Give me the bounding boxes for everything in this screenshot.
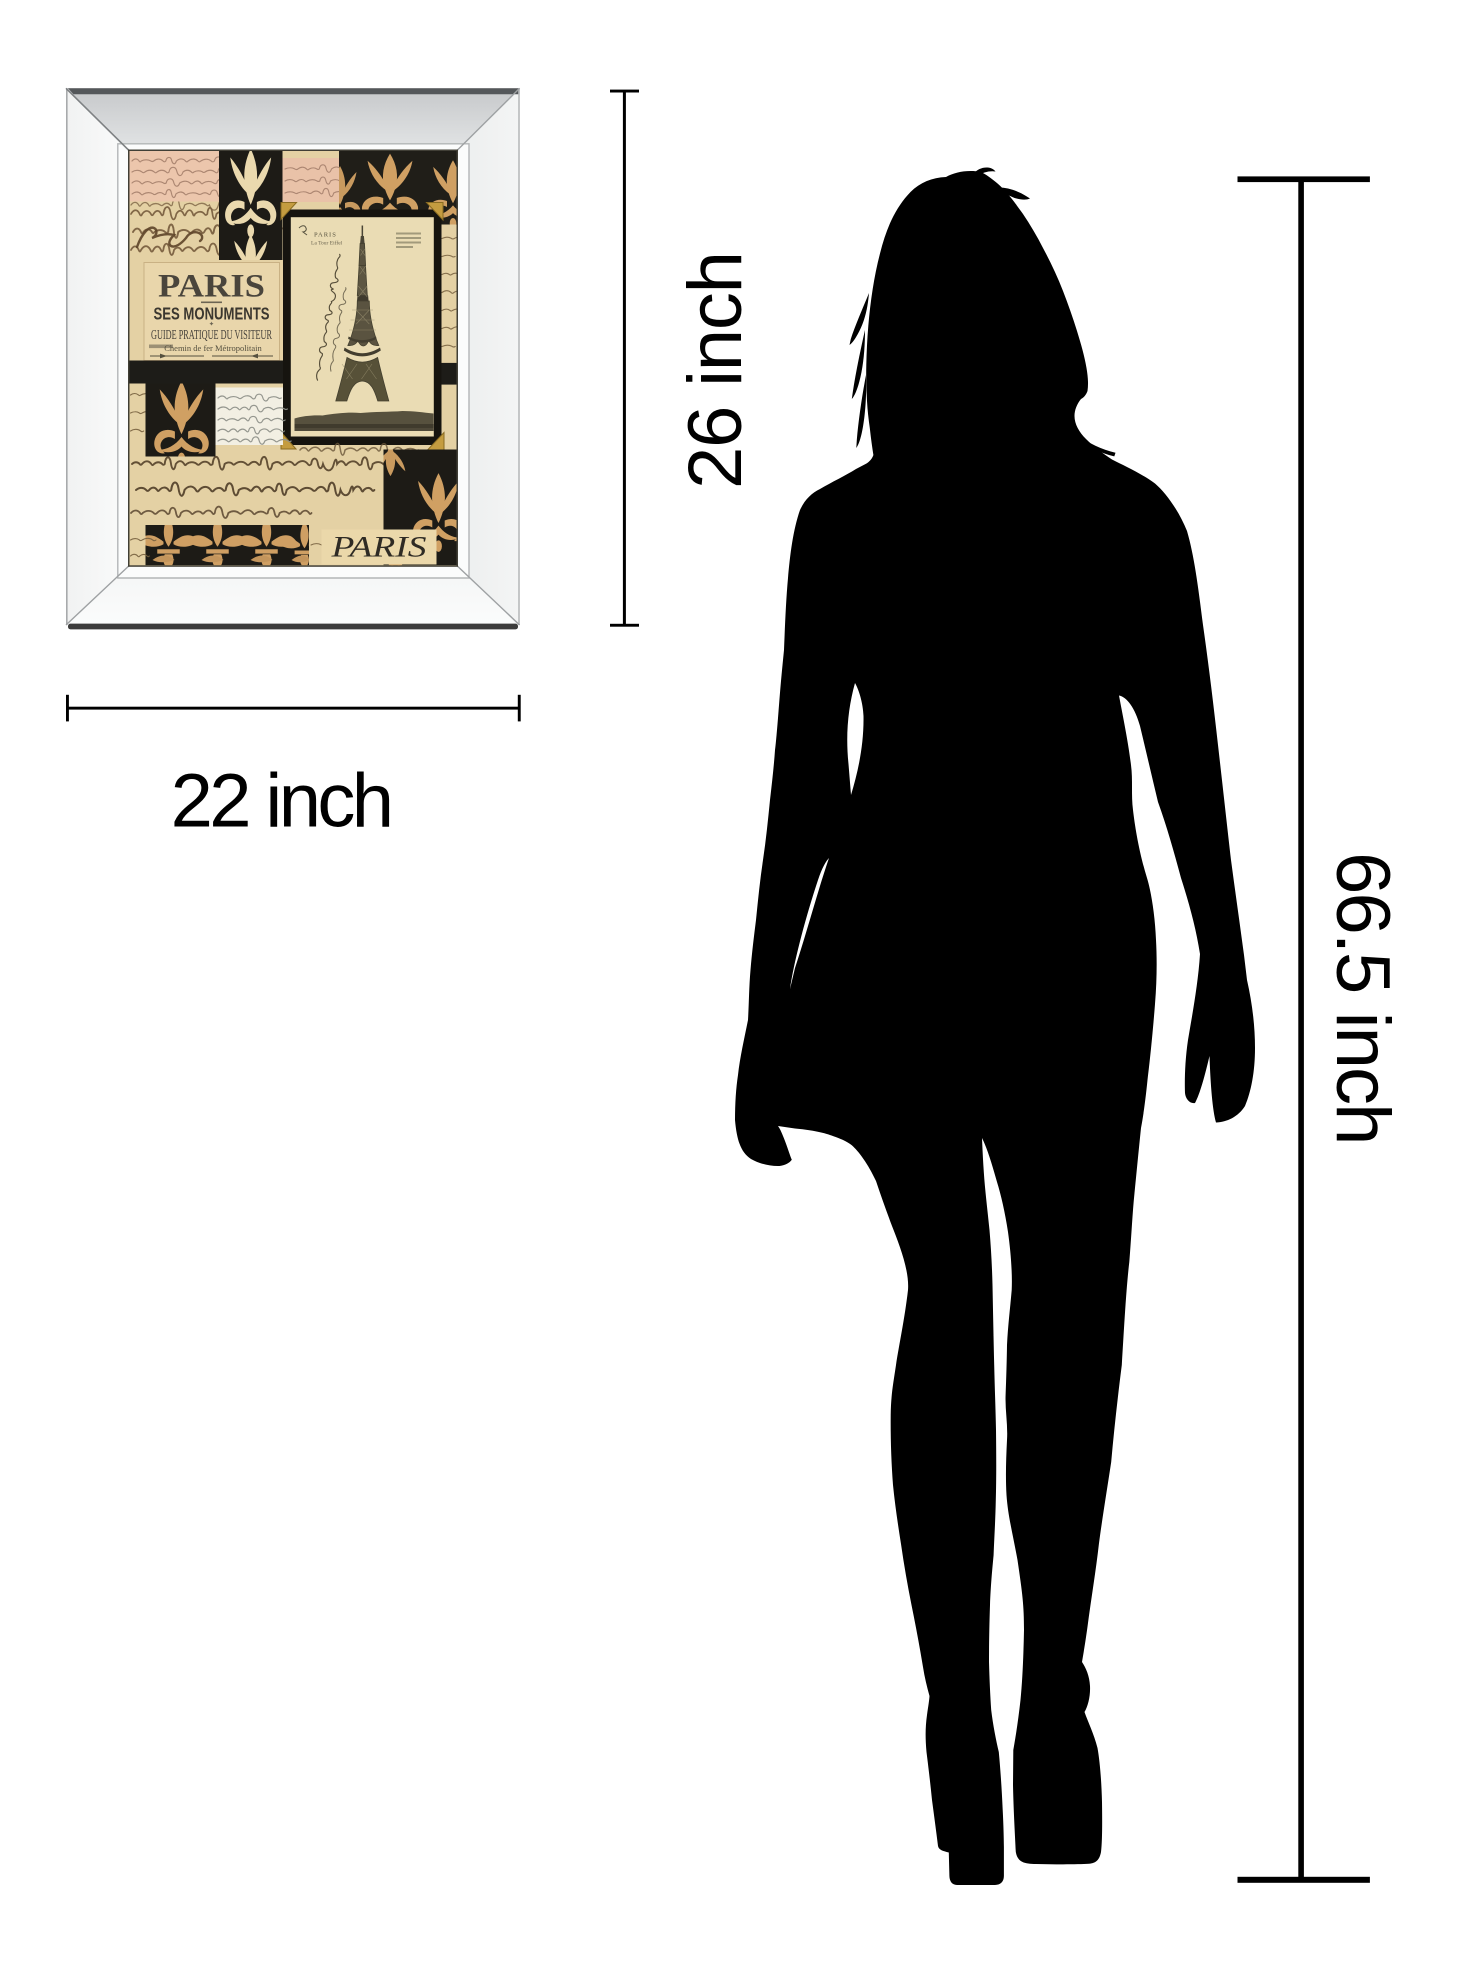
svg-text:22 inch: 22 inch <box>171 759 391 844</box>
svg-text:GUIDE PRATIQUE DU VISITEUR: GUIDE PRATIQUE DU VISITEUR <box>151 327 272 342</box>
svg-text:PARIS: PARIS <box>314 232 337 239</box>
svg-text:26 inch: 26 inch <box>673 252 758 489</box>
svg-text:Chemin de fer Métropolitain: Chemin de fer Métropolitain <box>164 343 262 353</box>
svg-text:PARIS: PARIS <box>330 531 426 564</box>
svg-text:66.5 inch: 66.5 inch <box>1320 852 1405 1143</box>
svg-text:La Tour Eiffel: La Tour Eiffel <box>311 240 343 247</box>
svg-text:PARIS: PARIS <box>158 269 265 305</box>
